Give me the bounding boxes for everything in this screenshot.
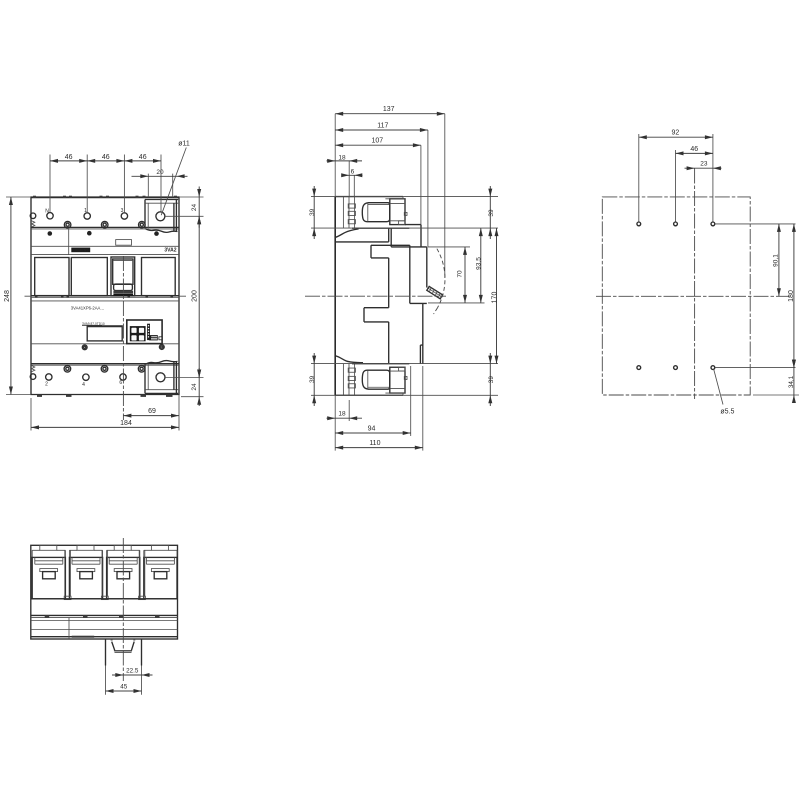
svg-text:200: 200 bbox=[192, 290, 199, 302]
svg-text:45: 45 bbox=[120, 684, 128, 691]
svg-text:4: 4 bbox=[82, 382, 85, 388]
svg-text:20: 20 bbox=[156, 169, 164, 176]
svg-text:18: 18 bbox=[338, 411, 346, 418]
svg-text:117: 117 bbox=[377, 123, 388, 130]
svg-text:2: 2 bbox=[45, 381, 48, 387]
svg-text:180: 180 bbox=[788, 290, 795, 302]
svg-text:39: 39 bbox=[309, 375, 316, 383]
svg-text:3VA41XP6-2AA…: 3VA41XP6-2AA… bbox=[71, 306, 105, 311]
svg-text:107: 107 bbox=[371, 138, 383, 145]
svg-text:248: 248 bbox=[4, 290, 11, 302]
svg-text:46: 46 bbox=[139, 154, 147, 161]
svg-text:ø11: ø11 bbox=[178, 141, 190, 148]
svg-text:24: 24 bbox=[191, 204, 198, 212]
svg-text:184: 184 bbox=[120, 420, 132, 427]
svg-text:3: 3 bbox=[121, 208, 124, 214]
svg-text:46: 46 bbox=[65, 154, 73, 161]
svg-text:SIEMENS: SIEMENS bbox=[73, 248, 90, 252]
svg-text:1: 1 bbox=[84, 208, 87, 214]
svg-text:6: 6 bbox=[119, 380, 122, 386]
svg-text:22.5: 22.5 bbox=[126, 668, 139, 675]
svg-text:39: 39 bbox=[309, 208, 316, 216]
svg-text:170: 170 bbox=[491, 292, 498, 304]
svg-text:92: 92 bbox=[672, 130, 680, 137]
svg-text:93,5: 93,5 bbox=[475, 257, 482, 270]
svg-text:3VA2: 3VA2 bbox=[164, 248, 176, 254]
svg-text:39: 39 bbox=[488, 209, 495, 217]
svg-text:70: 70 bbox=[456, 270, 463, 278]
svg-text:90,1: 90,1 bbox=[773, 254, 780, 267]
svg-text:23: 23 bbox=[700, 161, 708, 168]
svg-text:46: 46 bbox=[690, 146, 698, 153]
svg-text:24: 24 bbox=[191, 383, 198, 391]
svg-text:110: 110 bbox=[369, 440, 380, 447]
svg-text:ø5.5: ø5.5 bbox=[720, 409, 734, 416]
svg-text:18: 18 bbox=[338, 154, 346, 161]
svg-text:N: N bbox=[45, 209, 49, 215]
svg-text:94: 94 bbox=[368, 425, 376, 432]
svg-text:39: 39 bbox=[488, 376, 495, 384]
svg-text:34,1: 34,1 bbox=[788, 375, 795, 388]
svg-text:137: 137 bbox=[383, 106, 395, 113]
svg-text:6: 6 bbox=[351, 169, 355, 176]
svg-text:46: 46 bbox=[102, 154, 110, 161]
svg-text:69: 69 bbox=[148, 408, 156, 415]
